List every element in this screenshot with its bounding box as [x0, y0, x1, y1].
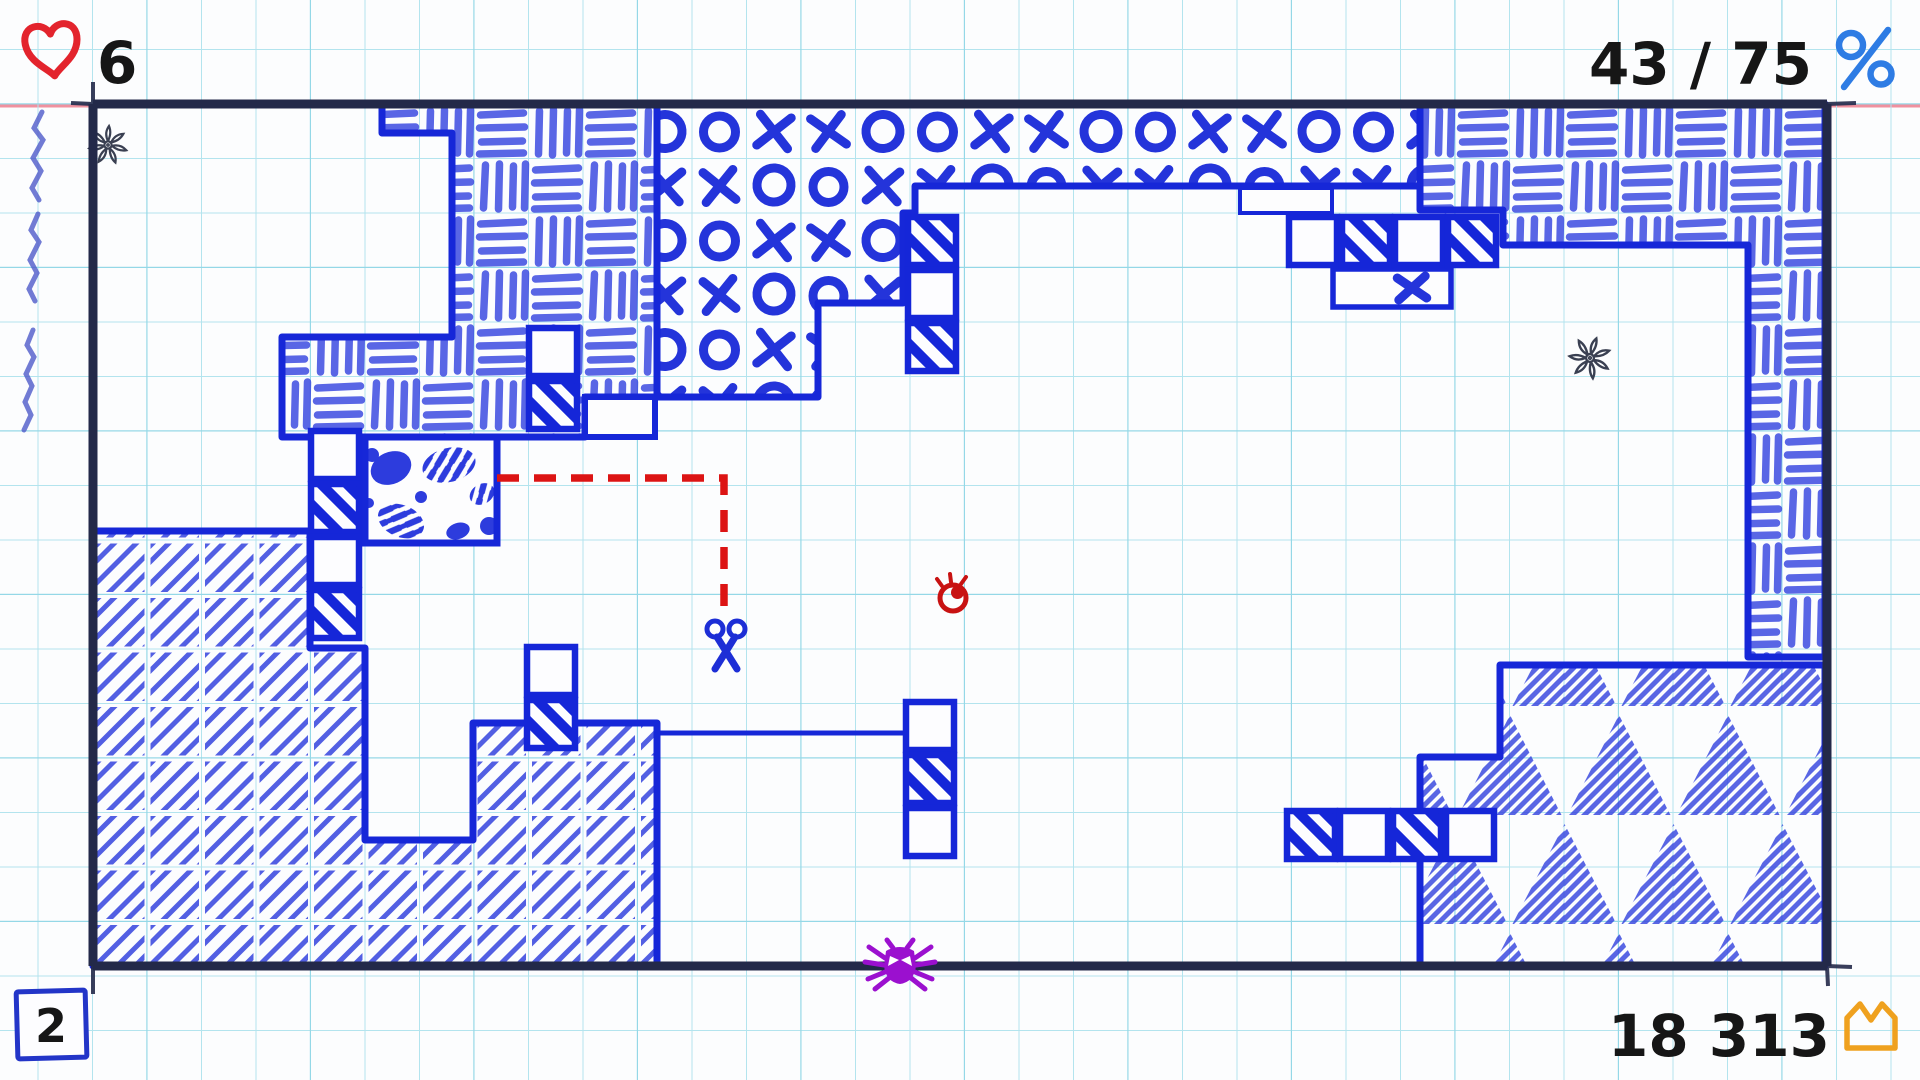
lives-count: 6 — [97, 29, 137, 97]
game-canvas[interactable]: 6 43 / 75 2 18 313 — [0, 0, 1920, 1080]
x-box — [1333, 269, 1451, 307]
level-number: 2 — [35, 999, 67, 1053]
white-notch-box — [585, 397, 655, 437]
region-spots — [364, 437, 498, 545]
tile-stack-lower-center — [897, 702, 967, 856]
game-screen: 6 43 / 75 2 18 313 — [0, 0, 1920, 1080]
progress-count: 43 / 75 — [1589, 30, 1812, 98]
score-value: 18 313 — [1608, 1002, 1830, 1070]
tile-stack-lower-mid — [518, 647, 588, 757]
tile-stack-upper-mid — [520, 328, 590, 438]
tile-row-top-right — [1289, 206, 1509, 274]
tile-stack-left — [302, 431, 372, 647]
tile-stack-center — [899, 206, 969, 380]
tile-row-bottom-right — [1278, 800, 1494, 868]
white-strip-box — [1240, 188, 1332, 213]
